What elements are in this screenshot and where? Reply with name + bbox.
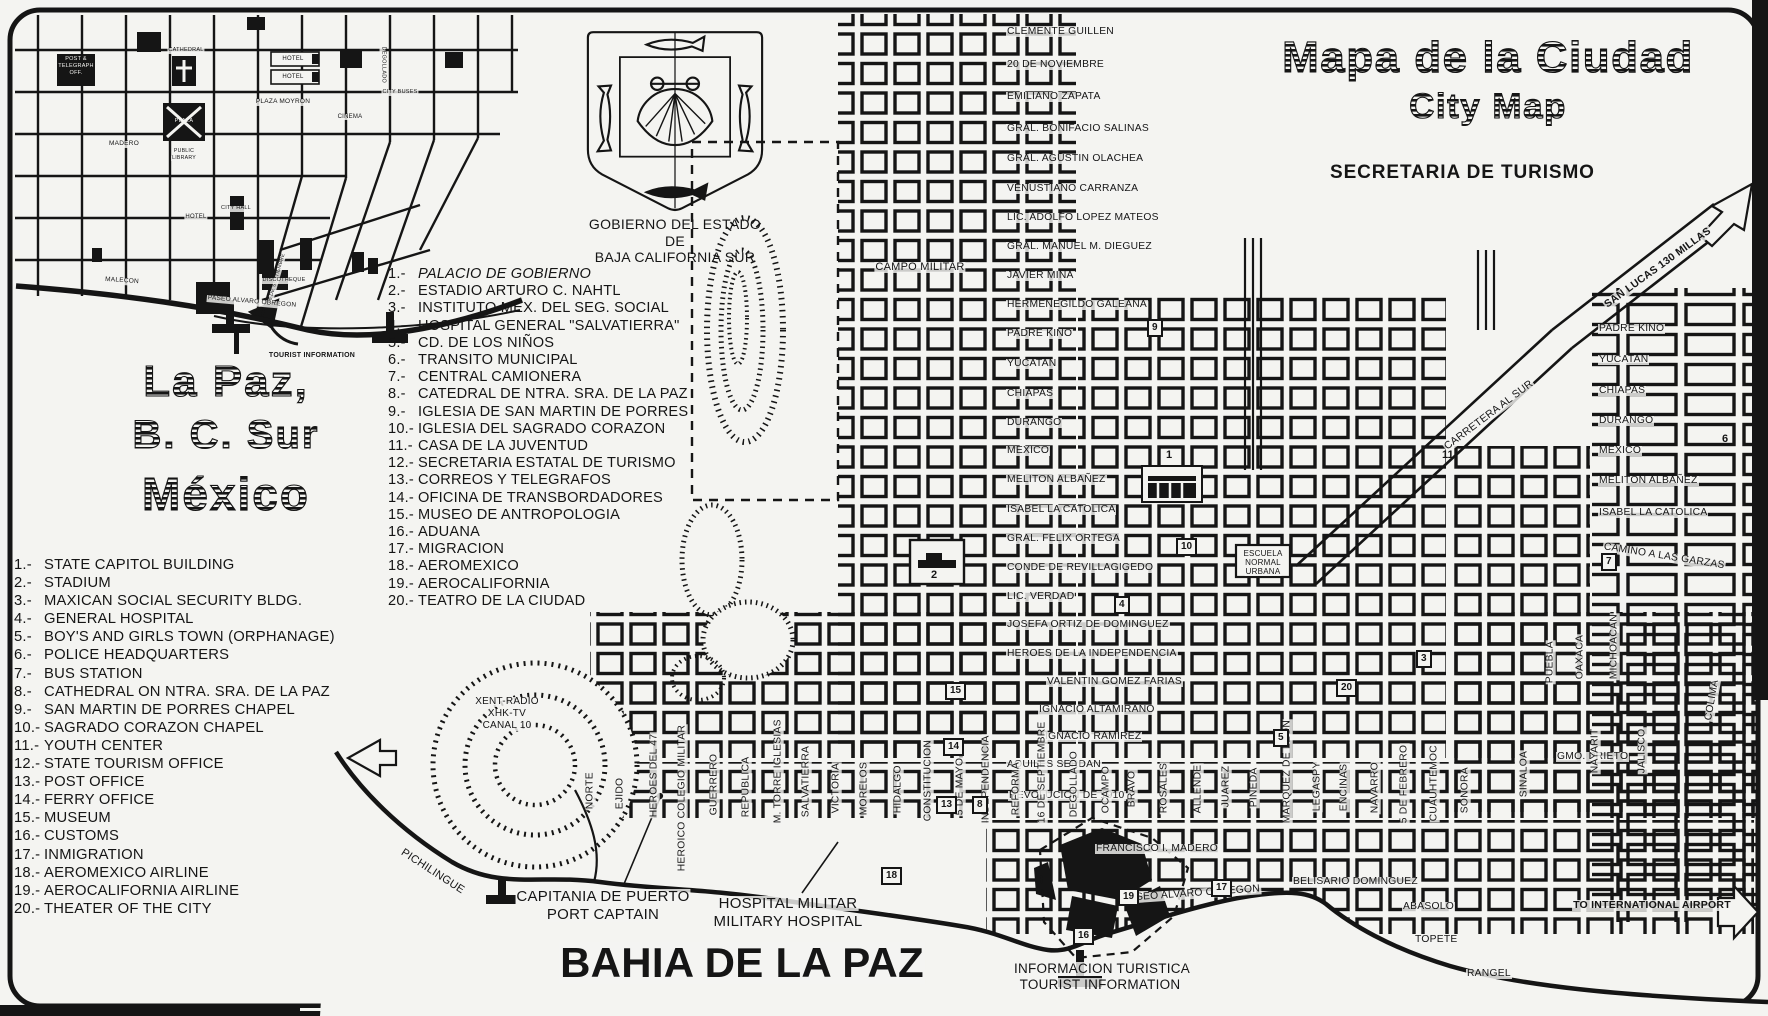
legend-item-label: CD. DE LOS NIÑOS	[418, 335, 554, 352]
legend-item-number: 4.-	[388, 318, 418, 335]
street-label: PASEO ALVARO OBREGON	[1121, 884, 1261, 904]
legend-item-label: IGLESIA DEL SAGRADO CORAZON	[418, 421, 665, 438]
street-label: CONDE DE REVILLAGIGEDO	[1006, 563, 1154, 573]
street-label: JALISCO	[1638, 728, 1648, 775]
place-title-line1: La Paz,	[143, 357, 309, 406]
street-label: PADRE KINO	[1598, 324, 1665, 334]
street-label: CONSTITUCION	[924, 739, 934, 822]
legend-item: 16.-CUSTOMS	[14, 827, 335, 845]
legend-item-number: 11.-	[14, 737, 44, 755]
legend-item: 8.-CATEDRAL DE NTRA. SRA. DE LA PAZ	[388, 386, 688, 403]
street-label: ALLENDE	[1194, 764, 1204, 815]
map-marker-20: 20	[1336, 679, 1357, 697]
city-map-sheet: Mapa de la Ciudad City Map SECRETARIA DE…	[0, 0, 1768, 1016]
map-marker-11: 11	[1442, 450, 1454, 461]
street-label: EJIDO	[616, 777, 626, 811]
bay-label: BAHIA DE LA PAZ	[559, 942, 925, 984]
road-label: PICHILINGUE	[398, 847, 467, 897]
legend-item-number: 4.-	[14, 610, 44, 628]
legend-item-label: MUSEO DE ANTROPOLOGIA	[418, 507, 620, 524]
street-label: RANGEL	[1466, 969, 1512, 979]
legend-item-label: AEROMEXICO AIRLINE	[44, 864, 209, 882]
street-label: 16 DE SEPTIEMBRE	[1038, 720, 1048, 824]
legend-item-label: CORREOS Y TELEGRAFOS	[418, 472, 611, 489]
legend-item-label: FERRY OFFICE	[44, 791, 154, 809]
legend-item-number: 11.-	[388, 438, 418, 455]
legend-item: 2.-STADIUM	[14, 574, 335, 592]
legend-item: 5.-CD. DE LOS NIÑOS	[388, 335, 688, 352]
legend-item-label: PALACIO DE GOBIERNO	[418, 266, 591, 283]
legend-item: 3.-MAXICAN SOCIAL SECURITY BLDG.	[14, 592, 335, 610]
legend-item-label: AEROCALIFORNIA	[418, 576, 550, 593]
legend-item-number: 2.-	[388, 283, 418, 300]
legend-item-label: MAXICAN SOCIAL SECURITY BLDG.	[44, 592, 302, 610]
legend-item-number: 9.-	[14, 701, 44, 719]
street-label: VALENTIN GOMEZ FARIAS	[1046, 677, 1183, 687]
port-captain-label: PORT CAPTAIN	[546, 907, 660, 922]
legend-item-label: CATHEDRAL ON NTRA. SRA. DE LA PAZ	[44, 683, 330, 701]
legend-item-number: 13.-	[388, 472, 418, 489]
legend-item: 1.-PALACIO DE GOBIERNO	[388, 266, 688, 283]
street-label: NORTE	[586, 771, 596, 810]
legend-item: 1.-STATE CAPITOL BUILDING	[14, 556, 335, 574]
street-label: CLEMENTE GUILLEN	[1006, 27, 1115, 37]
military-camp-label: CAMPO MILITAR	[874, 262, 965, 273]
legend-item-label: TEATRO DE LA CIUDAD	[418, 593, 585, 610]
street-label: HEROES DEL 47	[650, 733, 660, 819]
street-label: M. TORRE IGLESIAS	[774, 718, 784, 824]
legend-item-number: 5.-	[388, 335, 418, 352]
legend-item-label: BOY'S AND GIRLS TOWN (ORPHANAGE)	[44, 628, 335, 646]
inset-label: DEGOLLADO	[380, 46, 386, 84]
street-label: LEGASPY	[1313, 760, 1323, 812]
legend-item: 14.-OFICINA DE TRANSBORDADORES	[388, 490, 688, 507]
crest-caption-line: GOBIERNO DEL ESTADO	[553, 216, 797, 233]
street-label: MELITON ALBAÑEZ	[1006, 475, 1107, 485]
legend-item: 17.-INMIGRATION	[14, 846, 335, 864]
tourist-info-label: INFORMACION TURISTICA	[1013, 962, 1191, 976]
legend-item-label: STATE CAPITOL BUILDING	[44, 556, 235, 574]
legend-item-label: STADIUM	[44, 574, 111, 592]
legend-item-number: 17.-	[14, 846, 44, 864]
street-label: HEROICO COLEGIO MILITAR	[678, 724, 688, 872]
inset-label: HOTEL	[281, 74, 304, 80]
legend-item-number: 19.-	[388, 576, 418, 593]
street-label: JOSEFA ORTIZ DE DOMINGUEZ	[1006, 620, 1170, 630]
legend-item: 13.-POST OFFICE	[14, 773, 335, 791]
radio-station-label: XENT-RADIO	[474, 697, 540, 707]
title-block: Mapa de la Ciudad City Map	[1210, 14, 1768, 154]
legend-item-label: GENERAL HOSPITAL	[44, 610, 194, 628]
inset-label: CITY HALL	[220, 206, 252, 212]
page-title-en: City Map	[1409, 87, 1567, 126]
legend-item-label: TRANSITO MUNICIPAL	[418, 352, 578, 369]
street-label: CUAUHTEMOC	[1430, 744, 1440, 822]
legend-item-label: MUSEUM	[44, 809, 111, 827]
street-label: 20 DE NOVIEMBRE	[1006, 60, 1105, 70]
street-label: HERMENEGILDO GALEANA	[1006, 300, 1148, 310]
school-label: URBANA	[1245, 568, 1282, 576]
street-label: OAXACA	[1576, 634, 1586, 680]
legend-item-label: INMIGRATION	[44, 846, 144, 864]
map-marker-15: 15	[945, 682, 966, 700]
legend-english: 1.-STATE CAPITOL BUILDING2.-STADIUM3.-MA…	[14, 556, 335, 918]
legend-item-label: ESTADIO ARTURO C. NAHTL	[418, 283, 621, 300]
street-label: TOPETE	[1414, 935, 1459, 945]
place-title-line3: México	[142, 468, 310, 520]
legend-item-label: SECRETARIA ESTATAL DE TURISMO	[418, 455, 676, 472]
legend-item-number: 16.-	[388, 524, 418, 541]
street-label: CHIAPAS	[1598, 386, 1646, 396]
map-marker-5: 5	[1273, 729, 1289, 747]
radio-station-label: XHK-TV	[487, 709, 527, 719]
street-label: JUAREZ	[1222, 765, 1232, 809]
map-marker-2: 2	[931, 570, 937, 581]
street-label: GRAL. FELIX ORTEGA	[1006, 534, 1121, 544]
military-hospital-label: MILITARY HOSPITAL	[712, 914, 863, 929]
legend-item-number: 7.-	[388, 369, 418, 386]
legend-item: 4.-GENERAL HOSPITAL	[14, 610, 335, 628]
map-marker-13: 13	[936, 796, 957, 814]
map-marker-14: 14	[943, 738, 964, 756]
street-label: CHIAPAS	[1006, 389, 1054, 399]
legend-item: 6.-POLICE HEADQUARTERS	[14, 646, 335, 664]
legend-item-number: 20.-	[14, 900, 44, 918]
street-label: SALVATIERRA	[802, 745, 812, 818]
legend-item-number: 1.-	[388, 266, 418, 283]
street-label: 5 DE MAYO	[956, 757, 966, 817]
street-label: IGNACIO ALTAMIRANO	[1038, 705, 1156, 715]
legend-item-label: AEROMEXICO	[418, 558, 519, 575]
legend-item: 12.-STATE TOURISM OFFICE	[14, 755, 335, 773]
legend-item-number: 15.-	[388, 507, 418, 524]
street-label: PUEBLA	[1546, 640, 1556, 684]
street-label: GUERRERO	[710, 753, 720, 817]
state-crest	[560, 18, 790, 218]
legend-item: 17.-MIGRACION	[388, 541, 688, 558]
crest-caption-line: DE	[553, 233, 797, 250]
legend-item-number: 12.-	[14, 755, 44, 773]
street-label: LIC. VERDAD	[1006, 592, 1075, 602]
legend-item-number: 9.-	[388, 404, 418, 421]
street-label: YUCATAN	[1598, 355, 1649, 365]
legend-item-number: 5.-	[14, 628, 44, 646]
legend-item-label: IGLESIA DE SAN MARTIN DE PORRES	[418, 404, 688, 421]
legend-item: 7.-CENTRAL CAMIONERA	[388, 369, 688, 386]
street-label: SAN LUCAS 130 MILLAS	[1602, 225, 1714, 310]
legend-item-label: SAN MARTIN DE PORRES CHAPEL	[44, 701, 295, 719]
legend-item-label: POLICE HEADQUARTERS	[44, 646, 229, 664]
inset-label: PLAZA MOYRON	[255, 99, 311, 106]
inset-label: CITY BUSES	[381, 90, 418, 96]
military-hospital-label: HOSPITAL MILITAR	[718, 896, 859, 911]
place-title-line2: B. C. Sur	[133, 413, 320, 457]
street-label: CAMINO A LAS GARZAS	[1602, 542, 1726, 572]
legend-item-number: 13.-	[14, 773, 44, 791]
street-label: PADRE KINO	[1006, 329, 1073, 339]
legend-item: 16.-ADUANA	[388, 524, 688, 541]
street-label: REPUBLICA	[742, 756, 752, 819]
map-marker-7: 7	[1601, 553, 1617, 571]
legend-item-number: 10.-	[388, 421, 418, 438]
street-label: NAYARIT	[1591, 727, 1601, 774]
street-label: DURANGO	[1598, 416, 1654, 426]
street-label: YUCATAN	[1006, 359, 1057, 369]
street-label: MEXICO	[1598, 446, 1642, 456]
legend-item-number: 14.-	[14, 791, 44, 809]
street-label: HIDALGO	[894, 764, 904, 814]
legend-item-number: 3.-	[14, 592, 44, 610]
street-label: SONORA	[1461, 766, 1471, 814]
inset-label: CINEMA	[337, 114, 364, 120]
inset-label: PUBLIC	[173, 149, 195, 154]
street-label: JAVIER MINA	[1006, 271, 1075, 281]
street-label: FRANCISCO I. MADERO	[1095, 844, 1219, 854]
legend-item-number: 16.-	[14, 827, 44, 845]
street-label: EMILIANO ZAPATA	[1006, 92, 1102, 102]
legend-item-label: POST OFFICE	[44, 773, 145, 791]
legend-item-label: SAGRADO CORAZON CHAPEL	[44, 719, 264, 737]
legend-item: 10.-IGLESIA DEL SAGRADO CORAZON	[388, 421, 688, 438]
port-captain-label: CAPITANIA DE PUERTO	[515, 889, 690, 904]
inset-label: POST &	[65, 57, 87, 63]
legend-item-number: 6.-	[388, 352, 418, 369]
legend-item: 20.-THEATER OF THE CITY	[14, 900, 335, 918]
street-label: COLIMA	[1704, 678, 1722, 722]
street-label: 5 DE FEBRERO	[1400, 744, 1410, 825]
map-marker-19: 19	[1118, 888, 1139, 906]
street-label: NAVARRO	[1371, 761, 1381, 814]
legend-item: 9.-SAN MARTIN DE PORRES CHAPEL	[14, 701, 335, 719]
map-marker-6: 6	[1722, 434, 1728, 445]
inset-label: MALECON	[104, 277, 140, 286]
legend-item-label: STATE TOURISM OFFICE	[44, 755, 224, 773]
legend-item-label: THEATER OF THE CITY	[44, 900, 212, 918]
map-marker-16: 16	[1073, 927, 1094, 945]
legend-item: 10.-SAGRADO CORAZON CHAPEL	[14, 719, 335, 737]
street-label: MEXICO	[1006, 446, 1050, 456]
street-label: DURANGO	[1006, 418, 1062, 428]
legend-item-number: 18.-	[14, 864, 44, 882]
legend-item-number: 15.-	[14, 809, 44, 827]
legend-item: 19.-AEROCALIFORNIA	[388, 576, 688, 593]
legend-item: 20.-TEATRO DE LA CIUDAD	[388, 593, 688, 610]
legend-item: 5.-BOY'S AND GIRLS TOWN (ORPHANAGE)	[14, 628, 335, 646]
map-marker-18: 18	[881, 867, 902, 885]
legend-item: 15.-MUSEO DE ANTROPOLOGIA	[388, 507, 688, 524]
legend-item: 19.-AEROCALIFORNIA AIRLINE	[14, 882, 335, 900]
street-label: IGNACIO RAMIREZ	[1044, 732, 1142, 742]
street-label: ISABEL LA CATOLICA	[1598, 508, 1708, 518]
school-label: NORMAL	[1244, 559, 1282, 567]
inset-label: LIBRARY	[171, 156, 197, 161]
legend-item-number: 8.-	[388, 386, 418, 403]
street-label: GRAL. AGUSTIN OLACHEA	[1006, 154, 1144, 164]
legend-item-number: 10.-	[14, 719, 44, 737]
inset-label: PLAZA	[175, 119, 194, 125]
legend-item-number: 14.-	[388, 490, 418, 507]
legend-item: 11.-YOUTH CENTER	[14, 737, 335, 755]
radio-station-label: CANAL 10	[482, 721, 533, 731]
street-label: DEGOLLADO	[1070, 750, 1080, 818]
legend-item: 18.-AEROMEXICO	[388, 558, 688, 575]
street-label: MICHOACAN	[1610, 613, 1620, 680]
map-marker-17: 17	[1211, 879, 1232, 897]
legend-item-label: BUS STATION	[44, 665, 143, 683]
legend-item: 8.-CATHEDRAL ON NTRA. SRA. DE LA PAZ	[14, 683, 335, 701]
street-label: HEROES DE LA INDEPENDENCIA	[1006, 649, 1178, 659]
legend-item-number: 2.-	[14, 574, 44, 592]
legend-item-number: 3.-	[388, 300, 418, 317]
legend-item: 2.-ESTADIO ARTURO C. NAHTL	[388, 283, 688, 300]
legend-item-label: CASA DE LA JUVENTUD	[418, 438, 588, 455]
legend-item-label: CUSTOMS	[44, 827, 119, 845]
map-marker-4: 4	[1114, 596, 1130, 614]
legend-item-label: HOSPITAL GENERAL "SALVATIERRA"	[418, 318, 680, 335]
legend-item-number: 1.-	[14, 556, 44, 574]
street-label: REFORMA	[1012, 761, 1022, 816]
place-title-block: La Paz, B. C. Sur México	[66, 352, 386, 532]
legend-item: 4.-HOSPITAL GENERAL "SALVATIERRA"	[388, 318, 688, 335]
legend-item: 15.-MUSEUM	[14, 809, 335, 827]
legend-item: 6.-TRANSITO MUNICIPAL	[388, 352, 688, 369]
street-label: MORELOS	[860, 761, 870, 816]
legend-item-number: 12.-	[388, 455, 418, 472]
legend-item-label: YOUTH CENTER	[44, 737, 163, 755]
street-label: VICTORIA	[832, 762, 842, 814]
page-title: Mapa de la Ciudad	[1282, 33, 1694, 82]
inset-label: MADERO	[108, 141, 140, 148]
street-label: VENUSTIANO CARRANZA	[1006, 184, 1139, 194]
legend-item-number: 8.-	[14, 683, 44, 701]
map-marker-1: 1	[1166, 450, 1172, 461]
inset-label: HOTEL	[184, 214, 207, 220]
map-marker-10: 10	[1176, 538, 1197, 556]
legend-item-label: CENTRAL CAMIONERA	[418, 369, 581, 386]
street-label: ENCINAS	[1340, 763, 1350, 813]
inset-label: CATHEDRAL	[167, 48, 204, 54]
tourist-info-label: TOURIST INFORMATION	[1019, 978, 1182, 992]
street-label: ABASOLO	[1402, 902, 1455, 912]
legend-item: 3.-INSTITUTO MEX. DEL SEG. SOCIAL	[388, 300, 688, 317]
legend-item: 18.-AEROMEXICO AIRLINE	[14, 864, 335, 882]
crest-caption-line: BAJA CALIFORNIA SUR	[553, 249, 797, 266]
legend-item: 12.-SECRETARIA ESTATAL DE TURISMO	[388, 455, 688, 472]
legend-item-number: 7.-	[14, 665, 44, 683]
crest-caption: GOBIERNO DEL ESTADO DE BAJA CALIFORNIA S…	[553, 216, 797, 266]
street-label: MELITON ALBAÑEZ	[1598, 476, 1699, 486]
street-label: SINALOA	[1520, 750, 1530, 798]
inset-label: TELEGRAPH	[58, 64, 94, 70]
tourism-secretariat-label: SECRETARIA DE TURISMO	[1330, 162, 1595, 184]
inset-label: DISCOTHEQUE	[261, 278, 306, 284]
street-label: PINEDA	[1250, 766, 1260, 808]
street-label: CARRETERA AL SUR	[1442, 378, 1536, 453]
street-label: GRAL. BONIFACIO SALINAS	[1006, 124, 1150, 134]
legend-item-label: ADUANA	[418, 524, 480, 541]
legend-item-label: MIGRACION	[418, 541, 504, 558]
legend-item: 11.-CASA DE LA JUVENTUD	[388, 438, 688, 455]
legend-item: 7.-BUS STATION	[14, 665, 335, 683]
street-label: ISABEL LA CATOLICA	[1006, 505, 1116, 515]
legend-item-number: 19.-	[14, 882, 44, 900]
legend-item-number: 20.-	[388, 593, 418, 610]
legend-spanish: 1.-PALACIO DE GOBIERNO2.-ESTADIO ARTURO …	[388, 266, 688, 610]
street-label: BELISARIO DOMINGUEZ	[1292, 877, 1419, 887]
legend-item-label: OFICINA DE TRANSBORDADORES	[418, 490, 663, 507]
map-marker-8: 8	[972, 796, 988, 814]
inset-label: HOTEL	[281, 56, 304, 62]
legend-item-label: INSTITUTO MEX. DEL SEG. SOCIAL	[418, 300, 669, 317]
legend-item: 14.-FERRY OFFICE	[14, 791, 335, 809]
legend-item-number: 6.-	[14, 646, 44, 664]
inset-label: OFF.	[70, 71, 83, 77]
school-label: ESCUELA	[1242, 550, 1283, 558]
legend-item-number: 17.-	[388, 541, 418, 558]
inset-label: PASEO ALVARO OBREGON	[206, 295, 297, 309]
legend-item-number: 18.-	[388, 558, 418, 575]
street-label: GRAL. MANUEL M. DIEGUEZ	[1006, 242, 1153, 252]
map-marker-9: 9	[1147, 319, 1163, 337]
legend-item: 9.-IGLESIA DE SAN MARTIN DE PORRES	[388, 404, 688, 421]
street-label: BRAVO	[1128, 770, 1138, 809]
legend-item: 13.-CORREOS Y TELEGRAFOS	[388, 472, 688, 489]
legend-item-label: AEROCALIFORNIA AIRLINE	[44, 882, 239, 900]
street-label: OCAMPO	[1102, 765, 1112, 814]
airport-label: TO INTERNATIONAL AIRPORT	[1572, 900, 1732, 911]
street-label: ROSALES	[1160, 762, 1170, 814]
legend-item-label: CATEDRAL DE NTRA. SRA. DE LA PAZ	[418, 386, 688, 403]
map-marker-3: 3	[1416, 650, 1432, 668]
street-label: LIC. ADOLFO LOPEZ MATEOS	[1006, 213, 1160, 223]
